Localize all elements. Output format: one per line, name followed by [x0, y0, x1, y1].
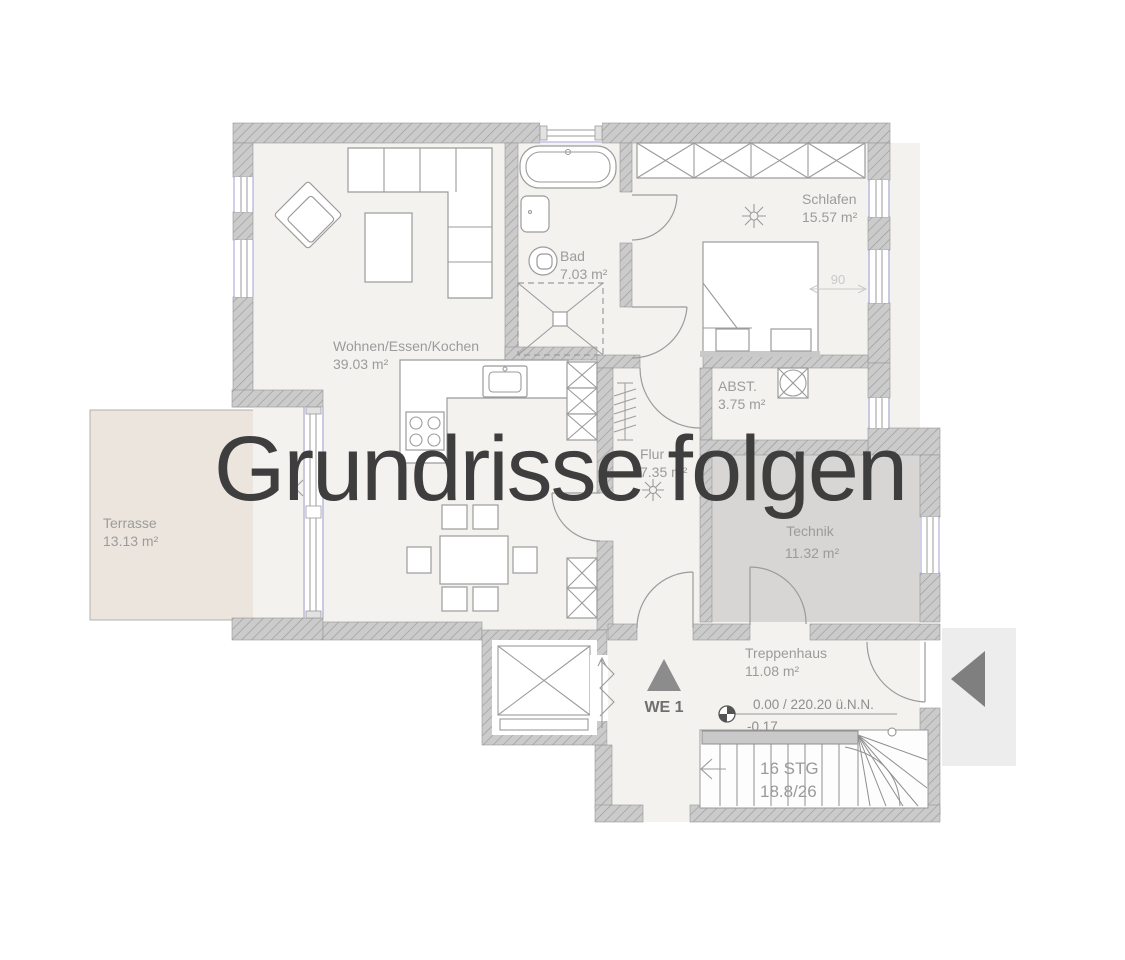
- bed: [700, 242, 820, 357]
- room-area-terrasse: 13.13 m²: [103, 533, 159, 549]
- light-icon-bedroom: [742, 204, 766, 228]
- window-bath: [540, 123, 602, 143]
- room-label-schlafen: Schlafen: [802, 191, 856, 207]
- bathtub: [520, 146, 616, 188]
- stairs-dim-label: 18.8/26: [760, 782, 817, 801]
- window-living-1: [234, 177, 253, 212]
- watermark-text: Grundrisse folgen: [214, 418, 906, 520]
- room-area-treppenhaus: 11.08 m²: [745, 663, 800, 679]
- room-label-bad: Bad: [560, 248, 585, 264]
- window-bedroom-1: [869, 180, 889, 217]
- room-label-wohnen: Wohnen/Essen/Kochen: [333, 338, 479, 354]
- room-area-wohnen: 39.03 m²: [333, 356, 389, 372]
- room-label-abst: ABST.: [718, 378, 757, 394]
- room-label-terrasse: Terrasse: [103, 515, 157, 531]
- coffee-table: [365, 213, 412, 282]
- floor-plan-canvas: 90: [0, 0, 1125, 960]
- door-width-label: 90: [831, 272, 845, 287]
- stairs-count-label: 16 STG: [760, 759, 819, 778]
- dining-table: [440, 536, 508, 584]
- stairhall-floor-gap: [643, 805, 690, 822]
- level-offset-label: -0.17: [747, 719, 778, 734]
- kitchen-sink: [483, 366, 527, 397]
- room-label-technik: Technik: [786, 523, 834, 539]
- room-label-treppenhaus: Treppenhaus: [745, 645, 827, 661]
- room-area-technik: 11.32 m²: [785, 545, 840, 561]
- wardrobe: [637, 143, 865, 178]
- room-area-schlafen: 15.57 m²: [802, 209, 858, 225]
- unit-label: WE 1: [644, 699, 683, 716]
- elevator: [492, 640, 614, 735]
- floor-plan-page: 90: [0, 0, 1125, 960]
- room-area-abst: 3.75 m²: [718, 396, 766, 412]
- washbasin: [521, 196, 549, 232]
- level-label: 0.00 / 220.20 ü.N.N.: [753, 697, 874, 712]
- vent-icon: [778, 368, 808, 398]
- toilet: [529, 247, 557, 275]
- room-area-bad: 7.03 m²: [560, 266, 608, 282]
- staircase: 16 STG 18.8/26: [700, 728, 928, 808]
- window-technik: [921, 517, 939, 573]
- window-bedroom-2: [869, 250, 889, 303]
- window-living-2: [234, 240, 253, 297]
